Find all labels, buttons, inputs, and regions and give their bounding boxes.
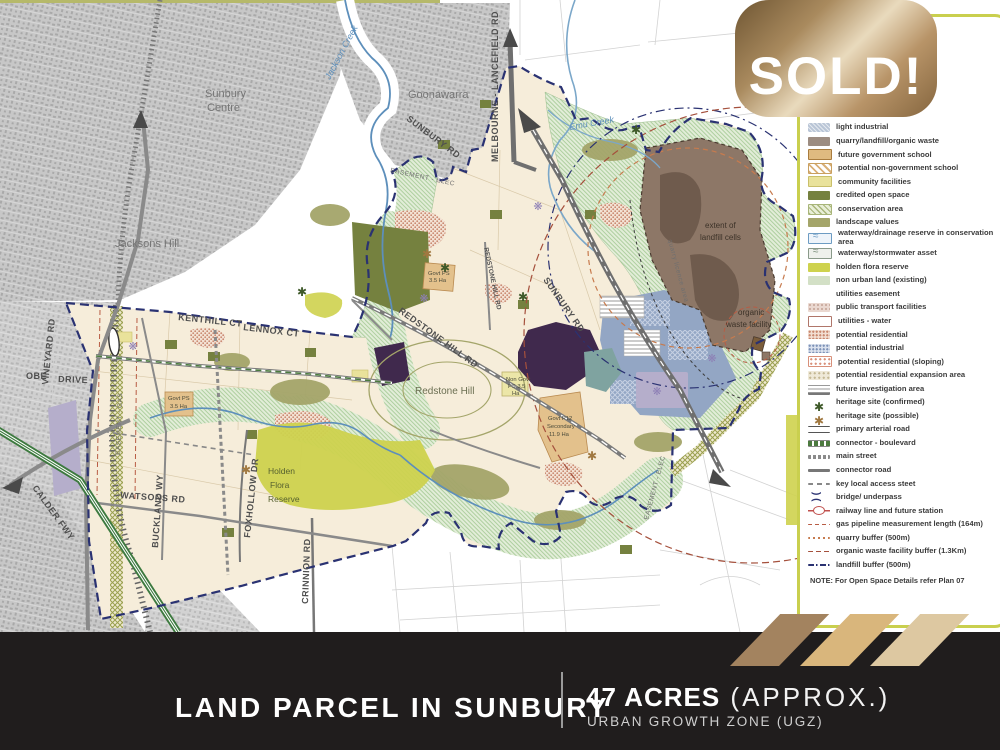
svg-text:waste facility: waste facility	[725, 320, 771, 329]
legend-item: non urban land (existing)	[808, 274, 1000, 288]
legend-item: organic waste facility buffer (1.3Km)	[808, 545, 1000, 559]
svg-text:PS 3.5: PS 3.5	[508, 384, 525, 390]
svg-text:Flora: Flora	[270, 480, 290, 490]
sold-banner: SOLD!	[735, 0, 937, 117]
goonawarra-label: Goonawarra	[408, 89, 469, 101]
zone-subtitle: URBAN GROWTH ZONE (UGZ)	[587, 714, 823, 729]
legend-item: potential residential (sloping)	[808, 355, 1000, 369]
legend-item: bridge/ underpass	[808, 491, 1000, 505]
legend-item: potential residential	[808, 328, 1000, 342]
legend-item: future investigation area	[808, 382, 1000, 396]
legend-item: public transport facilities	[808, 301, 1000, 315]
legend-item: utilities easement	[808, 287, 1000, 301]
heritage-possible-swatch	[808, 412, 830, 421]
svg-text:Ha: Ha	[512, 391, 520, 397]
svg-text:❋: ❋	[128, 341, 137, 353]
holden-flora-label: Holden	[268, 466, 295, 476]
boulevard-swatch	[808, 440, 830, 447]
extent-landfill-label: extent of	[705, 221, 736, 230]
community-swatch	[808, 176, 832, 187]
utilities-easement-swatch	[808, 290, 830, 299]
legend-item: future government school	[808, 148, 1000, 162]
credited-open-swatch	[808, 191, 830, 200]
legend-items: light industrial quarry/landfill/organic…	[808, 121, 1000, 572]
svg-text:✱: ✱	[587, 449, 597, 463]
svg-text:Non Govt: Non Govt	[506, 377, 531, 383]
svg-text:3.5 Ha: 3.5 Ha	[170, 404, 188, 410]
pot-res-sloping-swatch	[808, 356, 832, 367]
legend-item: quarry buffer (500m)	[808, 531, 1000, 545]
page-title: LAND PARCEL IN SUNBURY	[175, 692, 609, 724]
legend-item: potential non-government school	[808, 162, 1000, 176]
local-access-swatch	[808, 483, 830, 486]
svg-text:✱: ✱	[518, 290, 528, 304]
svg-text:Centre: Centre	[207, 102, 240, 114]
legend-note: NOTE: For Open Space Details refer Plan …	[808, 576, 1000, 585]
svg-text:Govt PS: Govt PS	[428, 271, 450, 277]
legend-item: heritage site (possible)	[808, 409, 1000, 423]
landscape-swatch	[808, 218, 830, 227]
svg-text:✱: ✱	[297, 285, 307, 299]
svg-text:3.5 Ha: 3.5 Ha	[429, 278, 447, 284]
svg-text:Reserve: Reserve	[268, 494, 300, 504]
acreage-heading: 47 ACRES (APPROX.)	[586, 682, 890, 713]
heritage-confirmed-swatch	[808, 398, 830, 407]
non-gov-school-swatch	[808, 163, 832, 174]
svg-text:✱: ✱	[631, 123, 641, 137]
svg-text:DRIVE: DRIVE	[58, 374, 88, 385]
pot-industrial-swatch	[808, 344, 830, 353]
waterway-stormwater-swatch	[808, 248, 832, 259]
legend-item: gas pipeline measurement length (164m)	[808, 518, 1000, 532]
legend-item: main street	[808, 450, 1000, 464]
organic-buffer-swatch	[808, 551, 830, 553]
oberon-drive-label: OBE	[26, 371, 47, 381]
map-top-edge	[0, 0, 440, 3]
legend-item: utilities - water	[808, 315, 1000, 329]
svg-text:❋: ❋	[533, 201, 542, 213]
sunbury-centre-label: Sunbury	[205, 88, 246, 100]
svg-text:❋: ❋	[707, 353, 716, 365]
legend-item: credited open space	[808, 189, 1000, 203]
non-urban-swatch	[808, 276, 830, 285]
railway-swatch	[808, 506, 830, 515]
svg-text:11.9 Ha: 11.9 Ha	[549, 432, 570, 438]
legend-item: landfill buffer (500m)	[808, 558, 1000, 572]
legend-item: potential residential expansion area	[808, 369, 1000, 383]
light-industrial-swatch	[808, 123, 830, 132]
gas-pipeline-swatch	[808, 524, 830, 526]
future-investigation-swatch	[808, 384, 830, 395]
jacksons-hill-label: Jacksons Hill	[115, 238, 179, 250]
flora-reserve-swatch	[808, 263, 830, 272]
legend-item: primary arterial road	[808, 423, 1000, 437]
legend-item: key local access steet	[808, 477, 1000, 491]
quarry-buffer-swatch	[808, 537, 830, 539]
svg-text:Govt P12: Govt P12	[548, 416, 572, 422]
svg-text:❋: ❋	[652, 386, 661, 398]
legend-item: holden flora reserve	[808, 260, 1000, 274]
conservation-swatch	[808, 204, 832, 215]
pot-res-expansion-swatch	[808, 371, 830, 380]
svg-text:❋: ❋	[419, 293, 428, 305]
sunbury-land-parcel-flyer: ✱ ✱ ✱ ✱ ✱ ✱ ✱ ❋ ❋ ❋ ❋ ❋ Sunbury Centre G…	[0, 0, 1000, 750]
organic-waste-label: organic	[738, 308, 764, 317]
svg-text:Secondary: Secondary	[547, 424, 575, 430]
legend-item: heritage site (confirmed)	[808, 396, 1000, 410]
legend-item: railway line and future station	[808, 504, 1000, 518]
legend-item: quarry/landfill/organic waste	[808, 135, 1000, 149]
svg-text:Govt PS: Govt PS	[168, 396, 190, 402]
sold-label: SOLD!	[749, 50, 924, 103]
waterway-drainage-swatch	[808, 233, 832, 244]
legend-item: potential industrial	[808, 342, 1000, 356]
legend-item: light industrial	[808, 121, 1000, 135]
main-street-swatch	[808, 455, 830, 459]
connector-swatch	[808, 469, 830, 472]
utilities-water-swatch	[808, 316, 832, 327]
future-gov-school-swatch	[808, 149, 832, 160]
pot-residential-swatch	[808, 330, 830, 339]
svg-text:✱: ✱	[422, 247, 432, 261]
quarry-waste-swatch	[808, 137, 830, 146]
public-transport-swatch	[808, 303, 830, 312]
landfill-buffer-swatch	[808, 564, 830, 566]
arterial-swatch	[808, 426, 830, 433]
legend-item: waterway/stormwater asset	[808, 247, 1000, 261]
legend-item: community facilities	[808, 175, 1000, 189]
legend-item: waterway/drainage reserve in conservatio…	[808, 229, 1000, 246]
legend-item: conservation area	[808, 202, 1000, 216]
svg-text:landfill cells: landfill cells	[700, 233, 741, 242]
melbourne-lancefield-rd-label: MELBOURNE - LANCEFIELD RD	[490, 11, 500, 162]
redstone-hill-label: Redstone Hill	[415, 386, 474, 397]
legend-item: connector road	[808, 464, 1000, 478]
footer-divider	[561, 672, 563, 728]
legend-item: landscape values	[808, 216, 1000, 230]
legend-item: connector - boulevard	[808, 436, 1000, 450]
bridge-swatch	[808, 493, 830, 502]
